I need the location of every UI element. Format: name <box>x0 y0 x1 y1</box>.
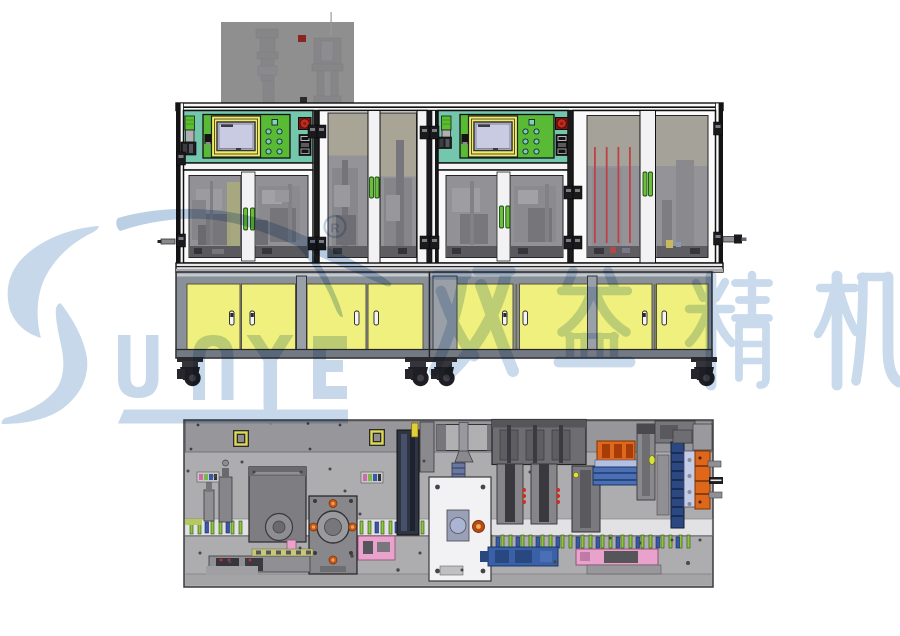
svg-text:R: R <box>330 221 340 236</box>
